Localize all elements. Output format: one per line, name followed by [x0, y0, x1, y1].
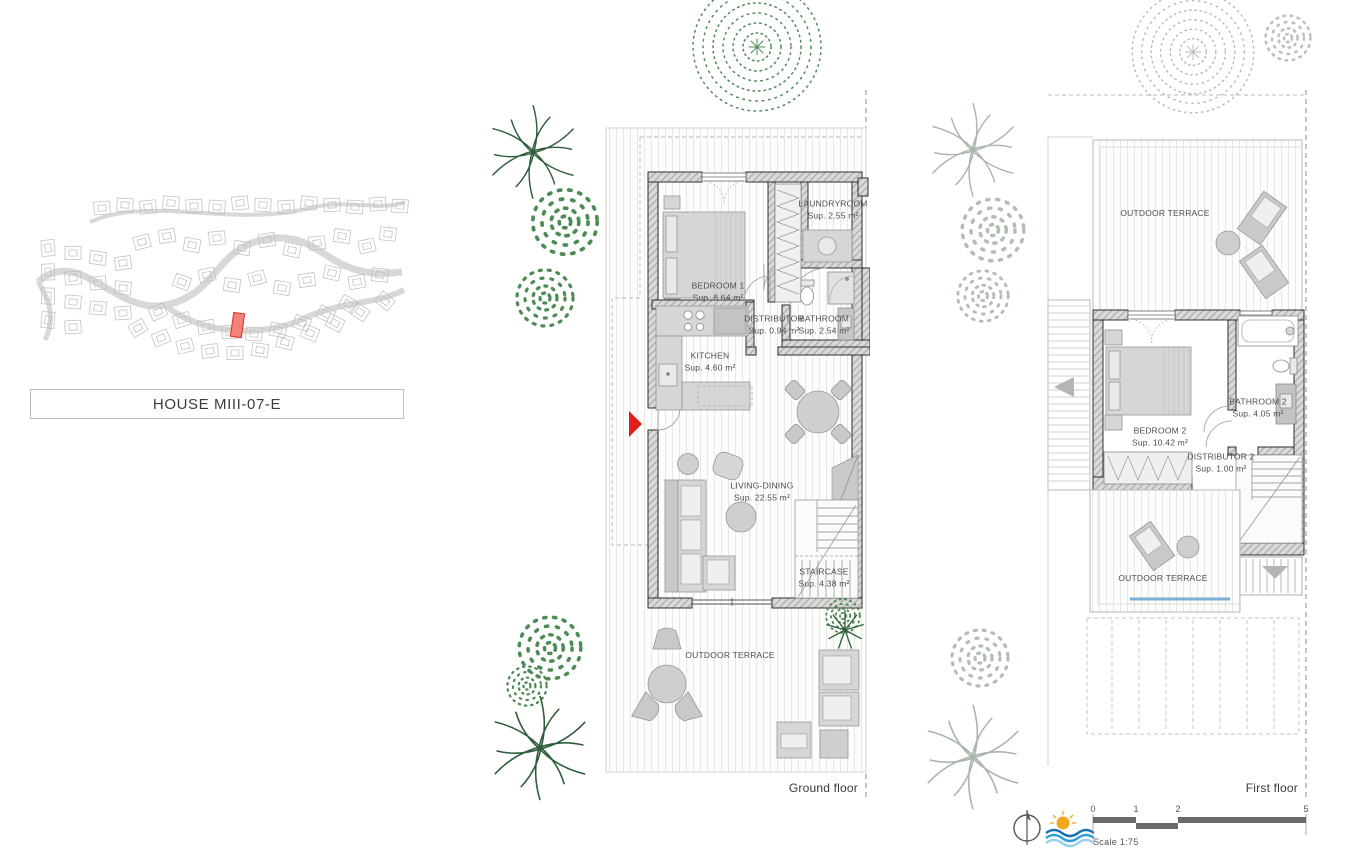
- floorplan-sheet: HOUSE MIII-07-E BEDROOM 1 Sup. 8.64 m² L…: [0, 0, 1358, 865]
- first-floor-caption: First floor: [1246, 781, 1298, 795]
- room-name: BATHROOM 2: [1229, 396, 1287, 408]
- room-name: BEDROOM 1: [692, 280, 745, 292]
- room-label-bedroom-2: BEDROOM 2 Sup. 10.42 m²: [1132, 425, 1188, 450]
- bottom-bar-graphics: [1005, 800, 1325, 860]
- terrace-table-bottom: [1177, 536, 1199, 558]
- room-area: Sup. 8.64 m²: [692, 292, 745, 304]
- scale-mark-5: 5: [1303, 804, 1308, 814]
- exterior-stair: [1240, 557, 1302, 595]
- scale-label: Scale 1:75: [1093, 837, 1139, 847]
- bush-gray-2: [958, 271, 1008, 321]
- room-area: Sup. 1.00 m²: [1187, 463, 1254, 475]
- room-label-distributor: DISTRIBUTOR Sup. 0.94 m²: [744, 313, 804, 338]
- room-area: Sup. 2.54 m²: [798, 325, 849, 337]
- entrance-arrow: [629, 411, 642, 437]
- room-area: Sup. 10.42 m²: [1132, 437, 1188, 449]
- plant-spiky-terrace: [826, 610, 863, 649]
- room-label-laundryroom: LAUNDRYROOM Sup. 2.55 m²: [798, 198, 867, 223]
- pergola-dashed: [1087, 618, 1299, 734]
- bush-green-1: [533, 190, 597, 254]
- terrace-bottom: [1090, 490, 1240, 612]
- room-name: BATHROOM: [798, 313, 849, 325]
- bush-gray-1: [962, 199, 1024, 261]
- site-highlighted-unit: [230, 312, 244, 337]
- bush-green-3: [519, 617, 581, 679]
- walls: [1093, 310, 1304, 555]
- room-label-terrace-ff-bottom: OUTDOOR TERRACE: [1118, 572, 1207, 584]
- room-name: OUTDOOR TERRACE: [1118, 572, 1207, 584]
- ground-floor-caption: Ground floor: [789, 781, 858, 795]
- room-name: STAIRCASE: [798, 566, 849, 578]
- terrace-table-top: [1216, 231, 1240, 255]
- room-area: Sup. 4.38 m²: [798, 578, 849, 590]
- terrace-top: [1093, 140, 1302, 312]
- palm-green-bottom: [493, 696, 588, 800]
- louver-strip: [1048, 300, 1090, 490]
- wardrobe-1: [775, 184, 801, 302]
- room-name: BEDROOM 2: [1132, 425, 1188, 437]
- plot-outline: [606, 128, 866, 772]
- scale-mark-1: 1: [1133, 804, 1138, 814]
- wardrobe-2: [1104, 452, 1192, 484]
- lounge-chair-bottom: [1129, 521, 1174, 570]
- palm-green-top: [491, 105, 576, 199]
- palm-gray-top: [931, 103, 1016, 197]
- room-name: OUTDOOR TERRACE: [685, 649, 774, 661]
- bush-green-2: [517, 270, 573, 326]
- room-label-bedroom-1: BEDROOM 1 Sup. 8.64 m²: [692, 280, 745, 305]
- room-label-bathroom-2: BATHROOM 2 Sup. 4.05 m²: [1229, 396, 1287, 421]
- site-plan: [30, 190, 410, 375]
- room-label-terrace-ff-top: OUTDOOR TERRACE: [1120, 207, 1209, 219]
- room-name: DISTRIBUTOR 2: [1187, 451, 1254, 463]
- bed-2: [1105, 330, 1191, 430]
- room-area: Sup. 22.55 m²: [730, 492, 793, 504]
- bush-gray-3: [952, 630, 1008, 686]
- tree-round-gray: [1132, 0, 1254, 113]
- plot-outline: [1048, 137, 1093, 766]
- sliding-door-terrace: [692, 598, 772, 606]
- room-label-living-dining: LIVING-DINING Sup. 22.55 m²: [730, 480, 793, 505]
- bush-green-4: [507, 666, 546, 705]
- scale-mark-0: 0: [1090, 804, 1095, 814]
- washer: [803, 230, 852, 262]
- bush-gray-corner: [1266, 16, 1311, 61]
- terrace-sofa-set: [777, 650, 859, 758]
- pouf-large: [726, 502, 756, 532]
- room-label-terrace-gf: OUTDOOR TERRACE: [685, 649, 774, 661]
- lounge-chair-1: [1237, 191, 1286, 245]
- room-name: LIVING-DINING: [730, 480, 793, 492]
- palm-gray-bottom: [926, 705, 1021, 809]
- walls: [648, 172, 870, 608]
- terrace-table-set: [632, 628, 703, 727]
- room-name: KITCHEN: [684, 350, 735, 362]
- window-top: [702, 173, 746, 181]
- room-name: LAUNDRYROOM: [798, 198, 867, 210]
- room-label-bathroom: BATHROOM Sup. 2.54 m²: [798, 313, 849, 338]
- house-title-box: HOUSE MIII-07-E: [30, 389, 404, 419]
- pouf-small: [678, 454, 699, 475]
- bush-green-terrace: [826, 599, 860, 633]
- room-label-kitchen: KITCHEN Sup. 4.60 m²: [684, 350, 735, 375]
- sofa: [665, 480, 735, 592]
- room-label-distributor-2: DISTRIBUTOR 2 Sup. 1.00 m²: [1187, 451, 1254, 476]
- windows: [1128, 311, 1272, 319]
- room-area: Sup. 4.05 m²: [1229, 408, 1287, 420]
- lounge-chair-2: [1239, 245, 1288, 299]
- room-name: OUTDOOR TERRACE: [1120, 207, 1209, 219]
- house-title: HOUSE MIII-07-E: [153, 396, 281, 413]
- north-arrow-icon: [1014, 810, 1040, 845]
- dining-table: [784, 379, 852, 445]
- ground-floor-plan: [600, 88, 870, 800]
- room-label-staircase: STAIRCASE Sup. 4.38 m²: [798, 566, 849, 591]
- room-name: DISTRIBUTOR: [744, 313, 804, 325]
- tree-round-green: [693, 0, 821, 111]
- site-houses: [41, 196, 409, 360]
- room-area: Sup. 0.94 m²: [744, 325, 804, 337]
- scale-bar: [1093, 814, 1306, 835]
- room-area: Sup. 2.55 m²: [798, 210, 867, 222]
- sun-waves-logo: [1046, 811, 1094, 846]
- site-roads: [38, 202, 405, 340]
- room-area: Sup. 4.60 m²: [684, 362, 735, 374]
- scale-mark-2: 2: [1175, 804, 1180, 814]
- armchair: [711, 450, 746, 482]
